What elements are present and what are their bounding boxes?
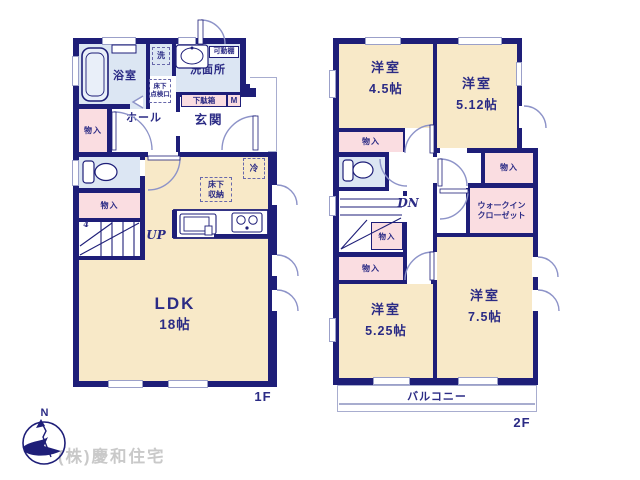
compass-bird — [23, 437, 61, 456]
f2-room-512 — [437, 44, 517, 148]
floorplan-canvas: 物入 物入 下駄箱 M 可動棚 床下 点検口 洗 冷 床下 収納 浴室 洗面所 … — [0, 0, 640, 480]
f2-toilet-room — [339, 157, 385, 187]
f1-washroom-label: 洗面所 — [176, 64, 240, 77]
f1-storage-west-label: 物入 — [84, 126, 102, 136]
compass-north-label: N — [37, 407, 53, 420]
window — [168, 380, 208, 388]
f2-room-75-name: 洋室 — [437, 288, 533, 304]
f2-hall-main — [407, 152, 433, 280]
f2-storage-a: 物入 — [339, 132, 403, 152]
casement-window-gap — [532, 257, 538, 277]
floor1-label: 1F — [245, 389, 281, 405]
f1-entrance-label: 玄関 — [182, 113, 236, 128]
f2-storage-a-label: 物入 — [362, 137, 380, 147]
f1-bathroom-label: 浴室 — [100, 70, 150, 83]
window — [72, 56, 79, 86]
window — [458, 37, 502, 45]
f2-toilet-front-hall — [389, 152, 407, 191]
f2-casement-arc — [538, 290, 559, 311]
f2-room-75 — [437, 237, 533, 378]
f1-shoebox: 下駄箱 — [181, 94, 227, 107]
casement-window-gap — [272, 255, 278, 276]
f1-laundry-label: 洗 — [157, 51, 165, 61]
f2-storage-b: 物入 — [485, 153, 533, 183]
f2-room-512-name: 洋室 — [437, 76, 517, 92]
f1-storage-west: 物入 — [79, 109, 107, 152]
window — [365, 37, 401, 45]
f2-storage-c-label: 物入 — [379, 232, 396, 241]
f1-underfloor-storage-label2: 収納 — [208, 190, 224, 200]
f1-movable-shelf: 可動棚 — [209, 46, 239, 58]
f1-underfloor-hatch: 床下 点検口 — [149, 79, 171, 103]
f2-storage-c: 物入 — [371, 222, 403, 250]
f1-casement-arc — [277, 290, 298, 311]
f1-meter-box: M — [227, 94, 241, 107]
window — [178, 37, 196, 45]
f2-room-525-size: 5.25帖 — [339, 324, 433, 339]
f1-underfloor-storage-label1: 床下 — [208, 180, 224, 190]
f2-room-45-size: 4.5帖 — [339, 82, 433, 97]
f2-hall-east-lower — [437, 183, 466, 233]
f1-storage-southwest: 物入 — [79, 193, 140, 218]
f1-underfloor-hatch-label1: 床下 — [154, 83, 167, 91]
f2-room-75-size: 7.5帖 — [437, 310, 533, 325]
f1-storage-southwest-label: 物入 — [101, 201, 119, 211]
window — [329, 196, 336, 216]
f2-storage-d: 物入 — [339, 257, 403, 280]
f2-room-525-name: 洋室 — [339, 302, 433, 318]
f1-casement-arc — [277, 255, 298, 276]
window — [102, 37, 136, 45]
f1-underfloor-hatch-label2: 点検口 — [150, 91, 170, 99]
floor2-top-right-cutout — [522, 38, 538, 148]
f2-room-45-doorzone — [405, 128, 433, 154]
f2-balcony-label: バルコニー — [337, 391, 537, 404]
f1-casement-arc — [277, 185, 297, 205]
company-watermark: (株)慶和住宅 — [58, 443, 218, 467]
window — [329, 318, 336, 342]
window — [72, 160, 79, 186]
casement-window-gap — [272, 290, 278, 311]
f2-stairs-down-label: DN — [394, 196, 422, 210]
f1-ldk-name-label: LDK — [125, 294, 225, 314]
f2-room-525-doorgap — [407, 280, 431, 284]
window — [458, 377, 498, 385]
f2-wic-doorgap — [440, 183, 468, 188]
f1-ldk-size-label: 18帖 — [125, 317, 225, 333]
f2-walk-in-closet: ウォークイン クローゼット — [470, 188, 533, 233]
window — [373, 377, 410, 385]
f1-fridge-space: 冷 — [243, 158, 265, 179]
casement-window-gap — [272, 185, 278, 205]
window — [329, 70, 336, 98]
f1-hall-ldk-doorgap — [148, 152, 178, 157]
f1-underfloor-storage: 床下 収納 — [200, 177, 232, 202]
f1-meter-box-label: M — [231, 96, 238, 106]
casement-window-gap — [519, 106, 525, 128]
f2-hall-east-upper — [437, 153, 481, 183]
f2-wic-label1: ウォークイン — [478, 201, 526, 211]
f1-laundry-pan: 洗 — [152, 47, 170, 65]
f2-room-45-name: 洋室 — [339, 60, 433, 76]
f1-hall-label: ホール — [112, 112, 176, 125]
f2-room-512-size: 5.12帖 — [437, 98, 517, 113]
f2-storage-b-label: 物入 — [500, 163, 518, 173]
f1-stairs-step-label: 4 — [80, 220, 92, 230]
f1-movable-shelf-label: 可動棚 — [214, 48, 235, 56]
floor2-label: 2F — [502, 415, 542, 431]
f1-fridge-label: 冷 — [250, 163, 259, 173]
f1-shoebox-label: 下駄箱 — [193, 96, 216, 105]
f1-stairs-up-label: UP — [141, 228, 171, 242]
f1-toilet-room — [79, 157, 140, 188]
f2-storage-d-label: 物入 — [362, 264, 380, 274]
f1-bathroom-doorgap — [130, 104, 146, 109]
f2-wic-label2: クローゼット — [478, 211, 526, 221]
f2-casement-arc — [538, 257, 558, 277]
window — [108, 380, 143, 388]
